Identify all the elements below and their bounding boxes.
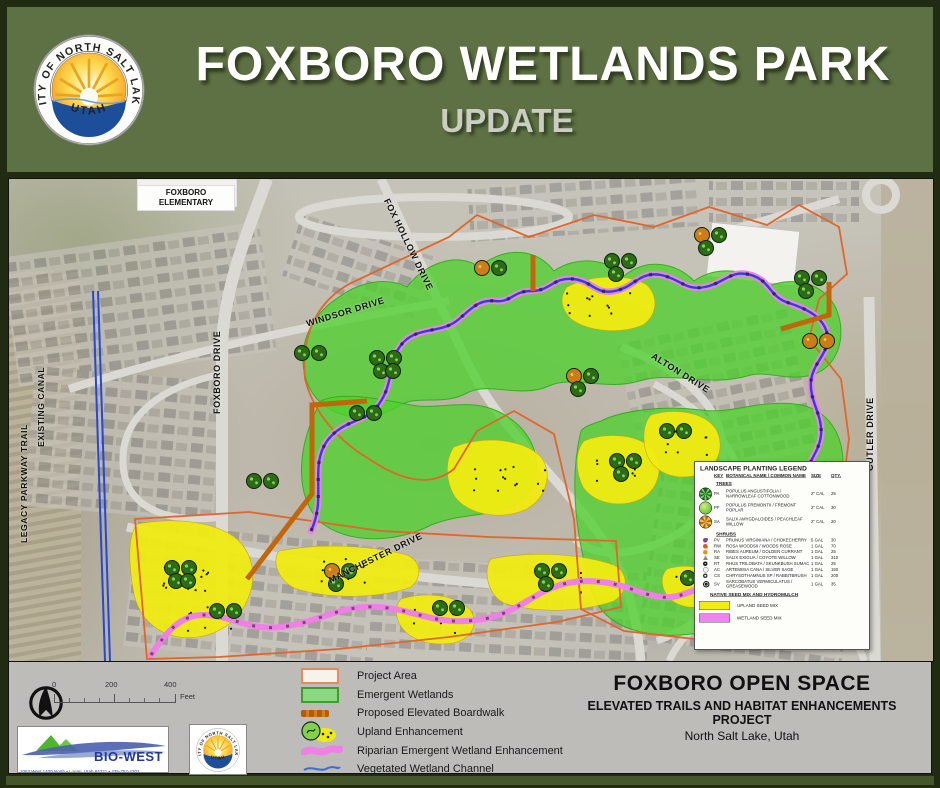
- project-subtitle2: PROJECT: [557, 713, 927, 727]
- channel-swatch-icon: [301, 763, 343, 775]
- plant-key: CS: [714, 574, 726, 579]
- plant-size: 2" CAL: [811, 492, 831, 497]
- plant-key: PF: [714, 506, 726, 511]
- legend-item-boardwalk: Proposed Elevated Boardwalk: [301, 704, 563, 723]
- plant-size: 1 GAL: [811, 555, 831, 560]
- plant-qty: 310: [831, 555, 846, 560]
- plant-key: SE: [714, 555, 726, 560]
- poster-subtitle: UPDATE: [147, 102, 867, 140]
- plant-name: SALIX AMYGDALOIDES / PEACHLEAF WILLOW: [726, 517, 811, 527]
- plant-size: 2" CAL: [811, 520, 831, 525]
- table-row: SV SARCOBATUS VERMICULATUS / GREASEWOOD …: [695, 579, 869, 589]
- table-row: AC ARTEMISIA CANA / SILVER SAGE 1 GAL 15…: [695, 567, 869, 573]
- col-qty: QTY.: [831, 473, 846, 478]
- biowest-address: 1063 West 1400 North • Logan, Utah 84321…: [20, 769, 168, 773]
- riparian-swatch-icon: [301, 744, 343, 758]
- boardwalk-swatch: [301, 710, 329, 717]
- plant-qty: 25: [831, 561, 846, 566]
- planting-legend-header: KEY BOTANICAL NAME / COMMON NAME SIZE QT…: [695, 473, 869, 478]
- plant-size: 2" CAL: [811, 506, 831, 511]
- trees-heading: TREES: [716, 481, 869, 487]
- tree-symbol-icon: [699, 502, 712, 515]
- col-size: SIZE: [811, 473, 831, 478]
- legend-label: Upland Enhancement: [357, 726, 463, 738]
- plant-name: CHRYSOTHAMNUS SP / RABBITBRUSH: [726, 574, 811, 579]
- plant-key: AC: [714, 567, 726, 572]
- plant-size: 1 GAL: [811, 561, 831, 566]
- legend-label: Emergent Wetlands: [357, 689, 453, 701]
- project-title-block: FOXBORO OPEN SPACE ELEVATED TRAILS AND H…: [557, 672, 927, 743]
- scale-0: 0: [52, 680, 56, 689]
- landscape-planting-legend: LANDSCAPE PLANTING LEGEND KEY BOTANICAL …: [694, 461, 870, 650]
- legend-item-riparian: Riparian Emergent Wetland Enhancement: [301, 741, 563, 760]
- legend-label: Riparian Emergent Wetland Enhancement: [357, 745, 563, 757]
- plant-qty: 30: [831, 506, 846, 511]
- col-key: KEY: [714, 473, 726, 478]
- project-area-swatch: [301, 668, 339, 684]
- street-label-existing-canal: EXISTING CANAL: [36, 367, 46, 447]
- city-seal-small-box: CITY OF NORTH SALT LAKE UTAH: [189, 724, 247, 775]
- table-row: RT RHUS TRILOBATA / SKUNKBUSH SUMAC 1 GA…: [695, 561, 869, 566]
- table-row: PA POPULUS ANGUSTIFOLIA / NARROWLEAF COT…: [695, 488, 869, 501]
- shrub-symbol-icon: [703, 581, 710, 588]
- project-subtitle: ELEVATED TRAILS AND HABITAT ENHANCEMENTS: [557, 699, 927, 713]
- emergent-wetlands-swatch: [301, 687, 339, 703]
- shrub-symbol-icon: [703, 538, 708, 543]
- map-area: FOXBORO ELEMENTARY FOX HOLLOW DRIVE WIND…: [8, 178, 934, 662]
- table-row: SE SALIX EXIGUA / COYOTE WILLOW 1 GAL 31…: [695, 555, 869, 560]
- plant-key: SA: [714, 520, 726, 525]
- city-seal-logo: CITY OF NORTH SALT LAKE UTAH: [33, 29, 145, 151]
- seed-row: WETLAND SEED MIX: [699, 614, 869, 623]
- seed-label: WETLAND SEED MIX: [737, 616, 782, 621]
- shrub-symbol-icon: [703, 550, 708, 555]
- upland-enhancement-icon: [301, 721, 337, 743]
- shrub-symbol-icon: [703, 574, 708, 579]
- plant-qty: 20: [831, 520, 846, 525]
- plant-qty: 200: [831, 574, 846, 579]
- plant-name: RIBES AUREUM / GOLDEN CURRANT: [726, 550, 811, 555]
- scale-200: 200: [105, 680, 118, 689]
- biowest-name: BIO-WEST: [94, 749, 163, 764]
- table-row: RW ROSA WOODSII / WOODS ROSE 1 GAL 70: [695, 544, 869, 549]
- plant-name: POPULUS FREMONTII / FREMONT POPLAR: [726, 503, 811, 513]
- plant-size: 1 GAL: [811, 550, 831, 555]
- shrubs-heading: SHRUBS: [716, 532, 869, 538]
- project-location: North Salt Lake, Utah: [557, 729, 927, 743]
- table-row: PF POPULUS FREMONTII / FREMONT POPLAR 2"…: [695, 502, 869, 515]
- school-label: FOXBORO ELEMENTARY: [137, 185, 235, 211]
- table-row: SA SALIX AMYGDALOIDES / PEACHLEAF WILLOW…: [695, 516, 869, 529]
- legend-label: Vegetated Wetland Channel: [357, 763, 494, 775]
- poster-title: FOXBORO WETLANDS PARK: [147, 37, 939, 92]
- planting-legend-title: LANDSCAPE PLANTING LEGEND: [695, 462, 869, 473]
- shrub-symbol-icon: [703, 561, 708, 566]
- street-label-cutler: CUTLER DRIVE: [865, 397, 875, 471]
- plant-size: 1 GAL: [811, 544, 831, 549]
- plant-size: 1 GAL: [811, 582, 831, 587]
- plant-qty: 25: [831, 492, 846, 497]
- scale-bar-line: [54, 694, 176, 703]
- table-row: PV PRUNUS VIRGINIANA / CHOKECHERRY 5 GAL…: [695, 538, 869, 543]
- plant-name: SALIX EXIGUA / COYOTE WILLOW: [726, 555, 811, 560]
- wetland-seed-swatch: [699, 614, 730, 623]
- plant-name: ARTEMISIA CANA / SILVER SAGE: [726, 567, 811, 572]
- plant-size: 5 GAL: [811, 538, 831, 543]
- plant-key: PA: [714, 492, 726, 497]
- shrub-symbol-icon: [703, 556, 708, 561]
- legend-item-emergent-wetlands: Emergent Wetlands: [301, 686, 563, 705]
- street-label-legacy-parkway: LEGACY PARKWAY TRAIL: [19, 424, 29, 543]
- legend-label: Project Area: [357, 670, 417, 682]
- plant-key: RT: [714, 561, 726, 566]
- open-field: [881, 179, 933, 661]
- seed-row: UPLAND SEED MIX: [699, 601, 869, 610]
- plant-size: 1 GAL: [811, 567, 831, 572]
- shrub-symbol-icon: [703, 544, 708, 549]
- tree-symbol-icon: [699, 488, 712, 501]
- poster: CITY OF NORTH SALT LAKE UTAH FOXBORO WET…: [0, 0, 940, 788]
- plant-name: POPULUS ANGUSTIFOLIA / NARROWLEAF COTTON…: [726, 489, 811, 499]
- plant-key: PV: [714, 538, 726, 543]
- city-seal-logo-small: CITY OF NORTH SALT LAKE UTAH: [196, 728, 240, 772]
- biowest-logo: BIO-WEST 1063 West 1400 North • Logan, U…: [17, 726, 169, 773]
- plant-name: PRUNUS VIRGINIANA / CHOKECHERRY: [726, 538, 811, 543]
- plant-name: RHUS TRILOBATA / SKUNKBUSH SUMAC: [726, 561, 811, 566]
- plant-key: RA: [714, 550, 726, 555]
- plant-qty: 150: [831, 567, 846, 572]
- plant-name: SARCOBATUS VERMICULATUS / GREASEWOOD: [726, 579, 811, 589]
- shrub-symbol-icon: [703, 567, 709, 573]
- seed-label: UPLAND SEED MIX: [737, 603, 778, 608]
- plant-key: RW: [714, 544, 726, 549]
- map-legend: Project Area Emergent Wetlands Proposed …: [301, 667, 563, 779]
- plant-qty: 35: [831, 582, 846, 587]
- map-footer-bar: 0 200 400 Feet Project Area Emergent Wet…: [8, 661, 932, 774]
- upland-seed-swatch: [699, 601, 730, 610]
- plant-qty: 25: [831, 550, 846, 555]
- plant-size: 1 GAL: [811, 574, 831, 579]
- tree-symbol-icon: [699, 516, 712, 529]
- scale-400: 400: [164, 680, 177, 689]
- legend-item-project-area: Project Area: [301, 667, 563, 686]
- plant-qty: 30: [831, 538, 846, 543]
- plant-key: SV: [714, 582, 726, 587]
- legend-label: Proposed Elevated Boardwalk: [357, 707, 504, 719]
- seed-heading: NATIVE SEED MIX AND HYDROMULCH: [710, 592, 869, 598]
- banner: CITY OF NORTH SALT LAKE UTAH FOXBORO WET…: [7, 7, 933, 172]
- legend-item-upland: Upland Enhancement: [301, 723, 563, 742]
- scale-bar: 0 200 400 Feet: [54, 676, 184, 710]
- project-title: FOXBORO OPEN SPACE: [557, 672, 927, 696]
- plant-qty: 70: [831, 544, 846, 549]
- street-label-foxboro: FOXBORO DRIVE: [212, 331, 222, 414]
- table-row: RA RIBES AUREUM / GOLDEN CURRANT 1 GAL 2…: [695, 550, 869, 555]
- scale-unit: Feet: [180, 692, 195, 701]
- table-row: CS CHRYSOTHAMNUS SP / RABBITBRUSH 1 GAL …: [695, 574, 869, 579]
- bottom-green-strip: [6, 776, 934, 785]
- plant-name: ROSA WOODSII / WOODS ROSE: [726, 544, 811, 549]
- col-name: BOTANICAL NAME / COMMON NAME: [726, 473, 811, 478]
